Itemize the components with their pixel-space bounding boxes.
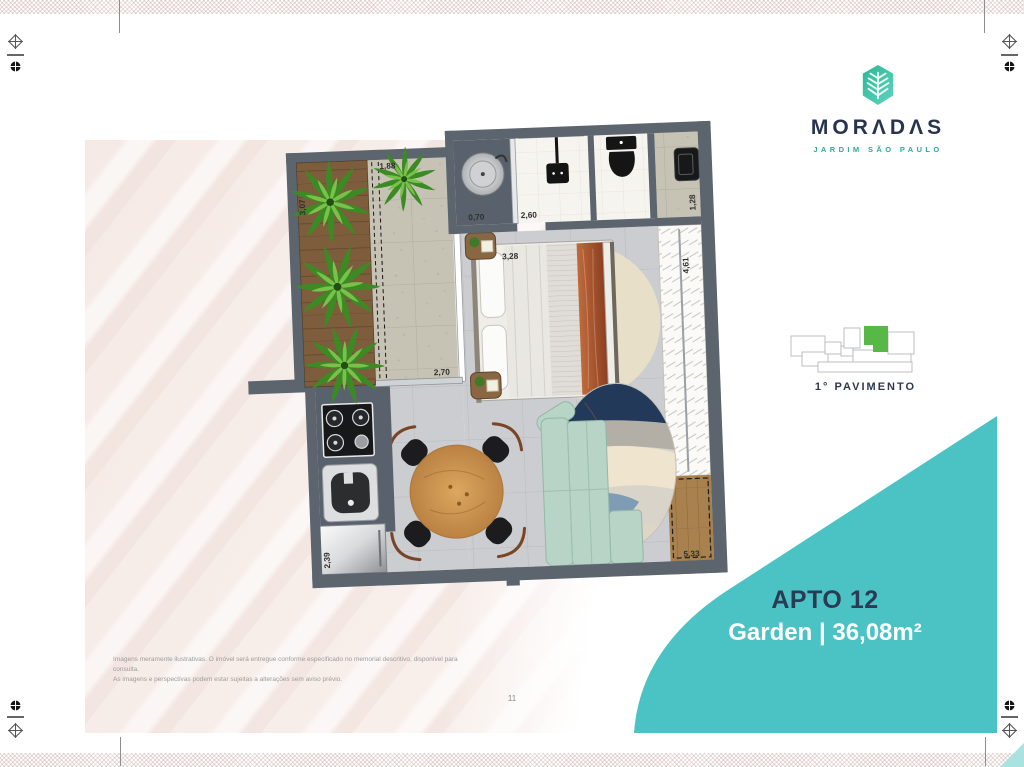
dim-bath: 2,60 (521, 211, 538, 221)
unit-subtitle: Garden | 36,08m² (680, 619, 970, 647)
dim-kitchen: 2,39 (322, 552, 332, 569)
crop-mark (120, 737, 121, 766)
floor-plan: 1,88 3,07 0,70 2,60 1,28 3,28 2,70 4,61 … (238, 101, 731, 597)
crop-mark (119, 0, 120, 33)
registration-mark-group (998, 700, 1020, 738)
registration-mark-group (4, 34, 26, 72)
dim-bedroom: 3,28 (502, 252, 519, 262)
mark-line (1001, 54, 1018, 56)
brochure-page: APTO 12 Garden | 36,08m² MORΛDΛS JARDIM … (0, 0, 1024, 767)
registration-mark-group (998, 34, 1020, 72)
mark-line (7, 54, 24, 56)
entry-washbasin (674, 148, 699, 181)
crop-mark (984, 0, 985, 33)
page-number: 11 (0, 694, 1024, 703)
registration-mark-group (4, 700, 26, 738)
keyplan-highlighted-unit (864, 326, 888, 352)
keyplan-label: 1° PAVIMENTO (788, 381, 943, 393)
nightstand (465, 232, 496, 259)
dim-laundry: 0,70 (468, 213, 485, 223)
disclaimer-line1: Imagens meramente ilustrativas. O imóvel… (113, 655, 473, 675)
keyplan-diagram (788, 320, 943, 378)
kitchen-sink (322, 463, 379, 522)
dim-garden-width: 1,88 (379, 161, 396, 171)
registration-dot-icon (1004, 61, 1015, 72)
brand-subtitle: JARDIM SÃO PAULO (803, 145, 953, 154)
unit-title: APTO 12 (680, 586, 970, 615)
dim-garden-height: 3,07 (298, 199, 308, 216)
brand-logo: MORΛDΛS JARDIM SÃO PAULO (803, 64, 953, 154)
cooktop (322, 403, 375, 457)
unit-info: APTO 12 Garden | 36,08m² (680, 586, 970, 647)
nightstand (470, 372, 501, 399)
mark-line (1001, 716, 1018, 718)
dim-garden-door: 2,70 (434, 368, 451, 378)
disclaimer-line2: As imagens e perspectivas podem estar su… (113, 675, 473, 685)
print-halftone-strip-bottom (0, 753, 1024, 767)
mark-line (7, 716, 24, 718)
crosshair-icon (8, 723, 23, 738)
brand-name: MORΛDΛS (803, 116, 953, 140)
crop-mark (985, 737, 986, 766)
registration-dot-icon (10, 61, 21, 72)
print-halftone-strip-top (0, 0, 1024, 14)
crosshair-icon (8, 34, 23, 49)
crosshair-icon (1002, 34, 1017, 49)
crosshair-icon (1002, 723, 1017, 738)
dim-terrace: 5,33 (683, 549, 700, 559)
dim-closet: 4,61 (681, 257, 691, 274)
leaf-hexagon-icon (859, 64, 897, 106)
dim-entry: 1,28 (688, 194, 698, 211)
disclaimer: Imagens meramente ilustrativas. O imóvel… (113, 655, 473, 685)
